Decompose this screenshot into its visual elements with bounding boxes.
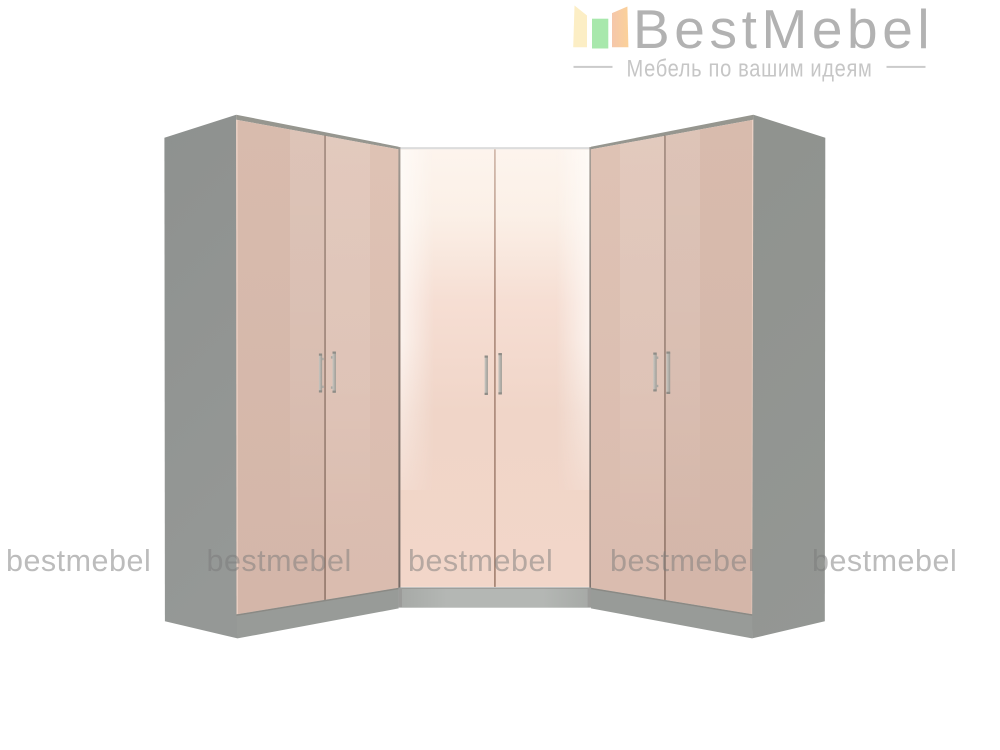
svg-text:BestMebel: BestMebel [633,0,934,60]
svg-text:bestmebel: bestmebel [408,544,553,578]
svg-text:bestmebel: bestmebel [207,544,352,578]
svg-text:bestmebel: bestmebel [610,544,755,578]
svg-text:Мебель по вашим идеям: Мебель по вашим идеям [627,56,873,83]
svg-text:bestmebel: bestmebel [812,544,957,578]
svg-text:bestmebel: bestmebel [6,544,151,578]
